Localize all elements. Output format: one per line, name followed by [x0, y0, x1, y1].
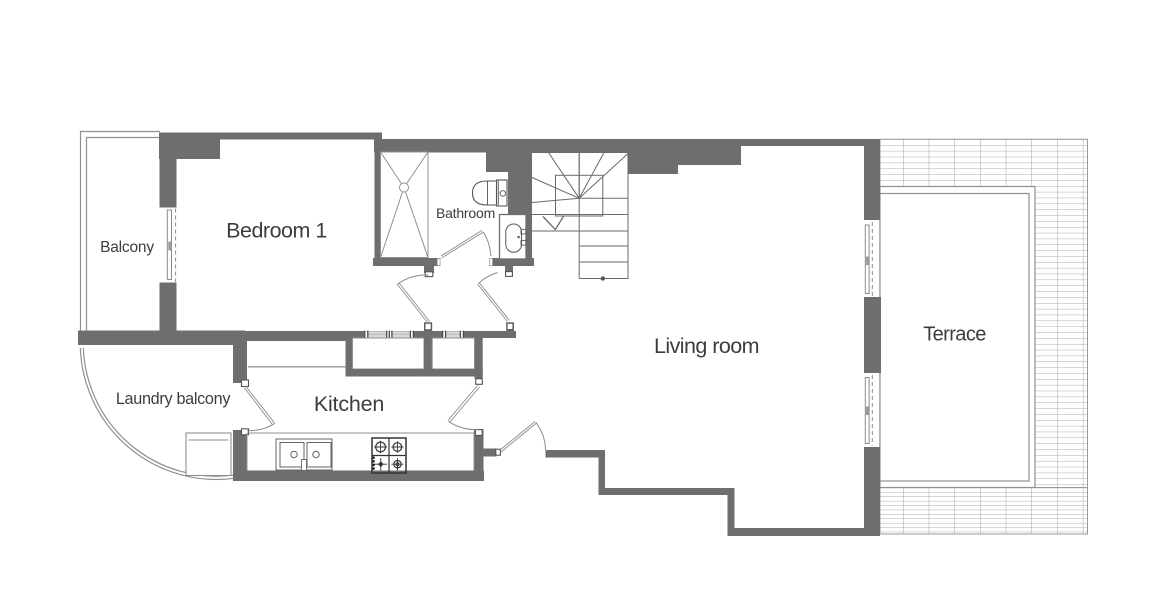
- svg-text:Laundry balcony: Laundry balcony: [116, 390, 231, 408]
- svg-text:Bathroom: Bathroom: [436, 205, 495, 221]
- svg-text:Terrace: Terrace: [923, 324, 986, 346]
- svg-text:Balcony: Balcony: [100, 239, 154, 256]
- svg-text:Living room: Living room: [654, 334, 759, 358]
- svg-text:Kitchen: Kitchen: [314, 392, 384, 416]
- svg-text:Bedroom 1: Bedroom 1: [226, 219, 327, 243]
